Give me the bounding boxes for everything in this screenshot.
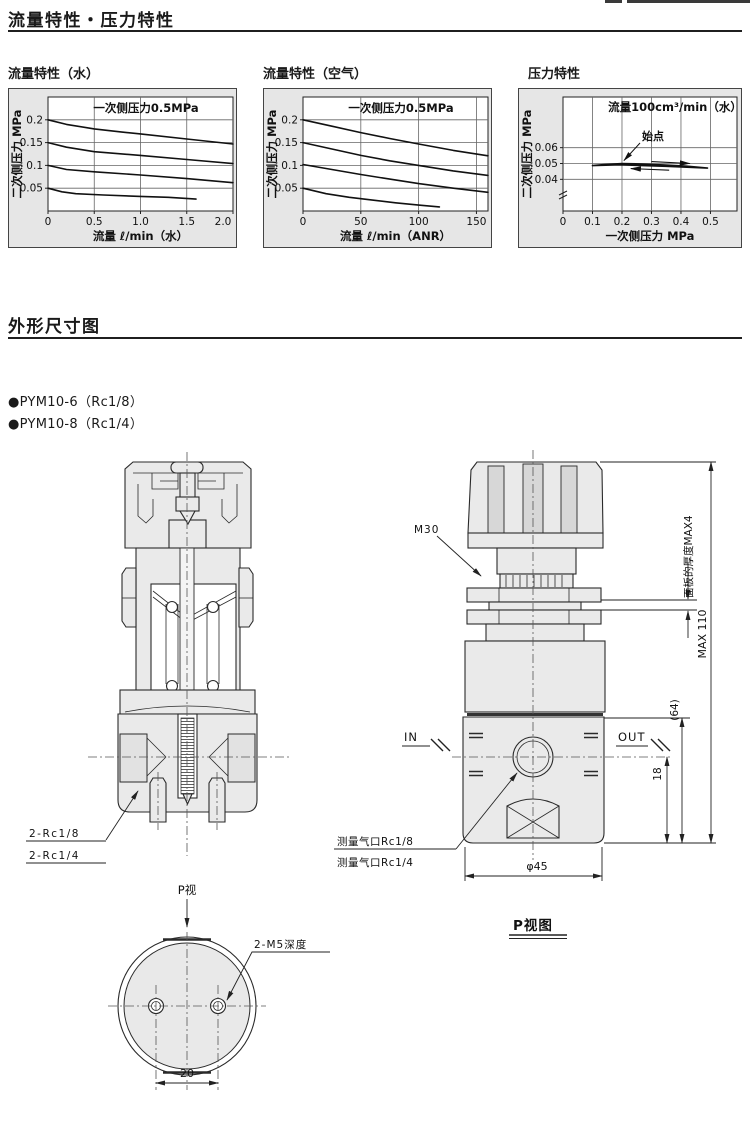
chart-pressure-title: 压力特性 [528,63,580,82]
y-tick-label: 0.2 [281,114,298,126]
chart-pressure: 00.10.20.30.40.50.040.050.06流量100cm³/min… [518,88,742,248]
chart-flow-water: 00.51.01.52.00.050.10.150.2一次侧压力0.5MPa流量… [8,88,237,248]
x-tick-label: 0.3 [643,216,660,228]
thread-label: M30 [414,524,439,536]
outlet-flow-arrow [651,739,670,751]
chart-water-title: 流量特性（水） [8,63,99,82]
y-tick-label: 0.06 [535,142,559,154]
y-tick-label: 0.05 [535,158,558,170]
model-bullet-1: ●PYM10-6（Rc1/8） [8,391,143,410]
chart-flow-air: 0501001500.050.10.150.2一次侧压力0.5MPa流量 ℓ/m… [263,88,492,248]
y-axis-label: 二次侧压力 MPa [520,110,534,199]
x-tick-label: 2.0 [215,216,232,228]
x-tick-label: 100 [409,216,429,228]
x-tick-label: 1.5 [178,216,195,228]
x-tick-label: 0 [45,216,52,228]
overall-height-dim: MAX 110 [696,609,709,658]
body-height-dim: (64) [669,699,681,721]
inlet-flow-arrow [431,739,450,751]
section2-title: 外形尺寸图 [8,312,101,337]
section-port-label-1: 2-Rc1/8 [29,828,80,840]
chart-air-title: 流量特性（空气） [263,63,367,82]
panel-thickness-dim: 面板的厚度MAX4 [682,515,695,598]
x-axis-label: 一次侧压力 MPa [606,229,695,243]
regulator-side-view: IN OUT M30 面板的厚度MAX4 MAX 110 (64) 18 [334,450,716,881]
section2-rule [8,337,742,339]
body-diameter-dim: φ45 [526,860,547,873]
p-view-arrow-label: P视 [178,883,197,897]
x-tick-label: 0.5 [702,216,719,228]
page-edge-mark [605,0,622,3]
p-view-caption-text: P视图 [513,917,553,934]
page-edge-mark [627,0,750,3]
chart-annotation: 流量100cm³/min（水） [608,100,742,114]
x-tick-label: 0 [300,216,307,228]
port-height-dim: 18 [652,767,664,780]
section-port-label-2: 2-Rc1/4 [29,850,80,862]
y-tick-label: 0.2 [26,114,43,126]
section1-rule [8,30,742,32]
dimension-drawings: 2-Rc1/8 2-Rc1/4 [0,430,750,1121]
regulator-section-view: 2-Rc1/8 2-Rc1/4 [26,452,292,863]
chart-annotation: 一次侧压力0.5MPa [348,101,453,115]
p-view: P视 2-M5深度 20 [108,883,330,1090]
hole-pitch-dim: 20 [180,1067,194,1080]
x-tick-label: 150 [466,216,486,228]
plot-area [563,97,737,211]
y-tick-label: 0.1 [281,160,298,172]
x-tick-label: 0.4 [673,216,690,228]
x-axis-label: 流量 ℓ/min（水） [93,229,188,243]
y-axis-label: 二次侧压力 MPa [265,110,279,199]
start-point-label: 始点 [642,129,664,143]
p-view-caption: P视图 [509,917,567,939]
x-tick-label: 0.1 [584,216,601,228]
x-tick-label: 50 [354,216,367,228]
y-tick-label: 0.04 [535,174,559,186]
x-tick-label: 0.2 [614,216,631,228]
y-axis-label: 二次侧压力 MPa [10,110,24,199]
gauge-port-label-1: 测量气口Rc1/8 [337,835,413,848]
datasheet-page: 流量特性・压力特性 流量特性（水） 流量特性（空气） 压力特性 00.51.01… [0,0,750,1121]
x-tick-label: 0.5 [86,216,103,228]
x-tick-label: 1.0 [132,216,149,228]
x-tick-label: 0 [560,216,567,228]
section1-title: 流量特性・压力特性 [8,6,175,31]
gauge-port-label-2: 测量气口Rc1/4 [337,856,413,869]
y-tick-label: 0.1 [26,160,43,172]
x-axis-label: 流量 ℓ/min（ANR） [340,229,451,243]
mounting-holes-label: 2-M5深度 [254,938,307,951]
inlet-label: IN [404,730,418,744]
chart-annotation: 一次侧压力0.5MPa [93,101,198,115]
outlet-label: OUT [618,730,646,744]
